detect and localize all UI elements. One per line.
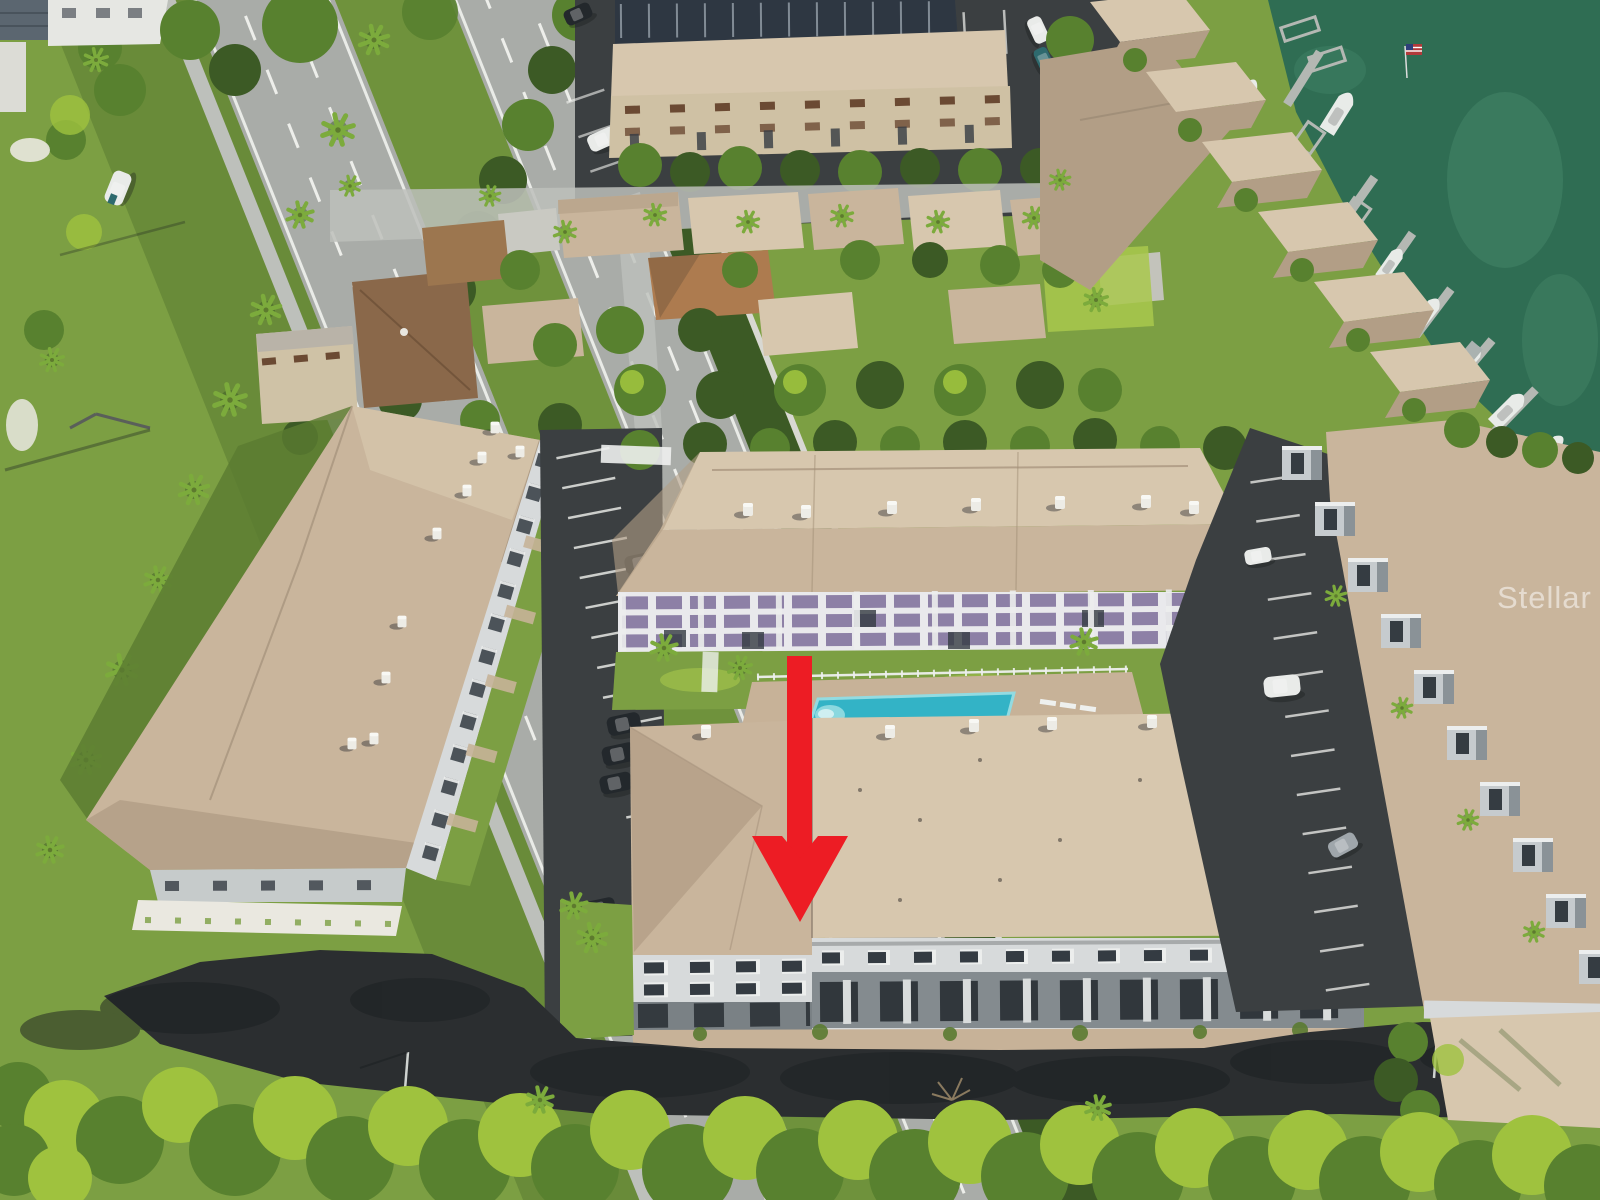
townhouse-balcony — [1546, 894, 1586, 928]
aerial-photo: Stellar MLS — [0, 0, 1600, 1200]
townhouse-balcony — [1381, 614, 1421, 648]
townhouse-balcony — [1447, 726, 1487, 760]
townhouse-balcony — [1315, 502, 1355, 536]
central-condo-building — [601, 418, 1247, 710]
townhouse-balcony — [1579, 950, 1600, 984]
townhouse-balcony — [1414, 670, 1454, 704]
townhouse-balcony — [1513, 838, 1553, 872]
townhouse-balcony — [1480, 782, 1520, 816]
aerial-scene — [0, 0, 1600, 1200]
townhouse-balcony — [1348, 558, 1388, 592]
townhouse-balcony — [1282, 446, 1322, 480]
